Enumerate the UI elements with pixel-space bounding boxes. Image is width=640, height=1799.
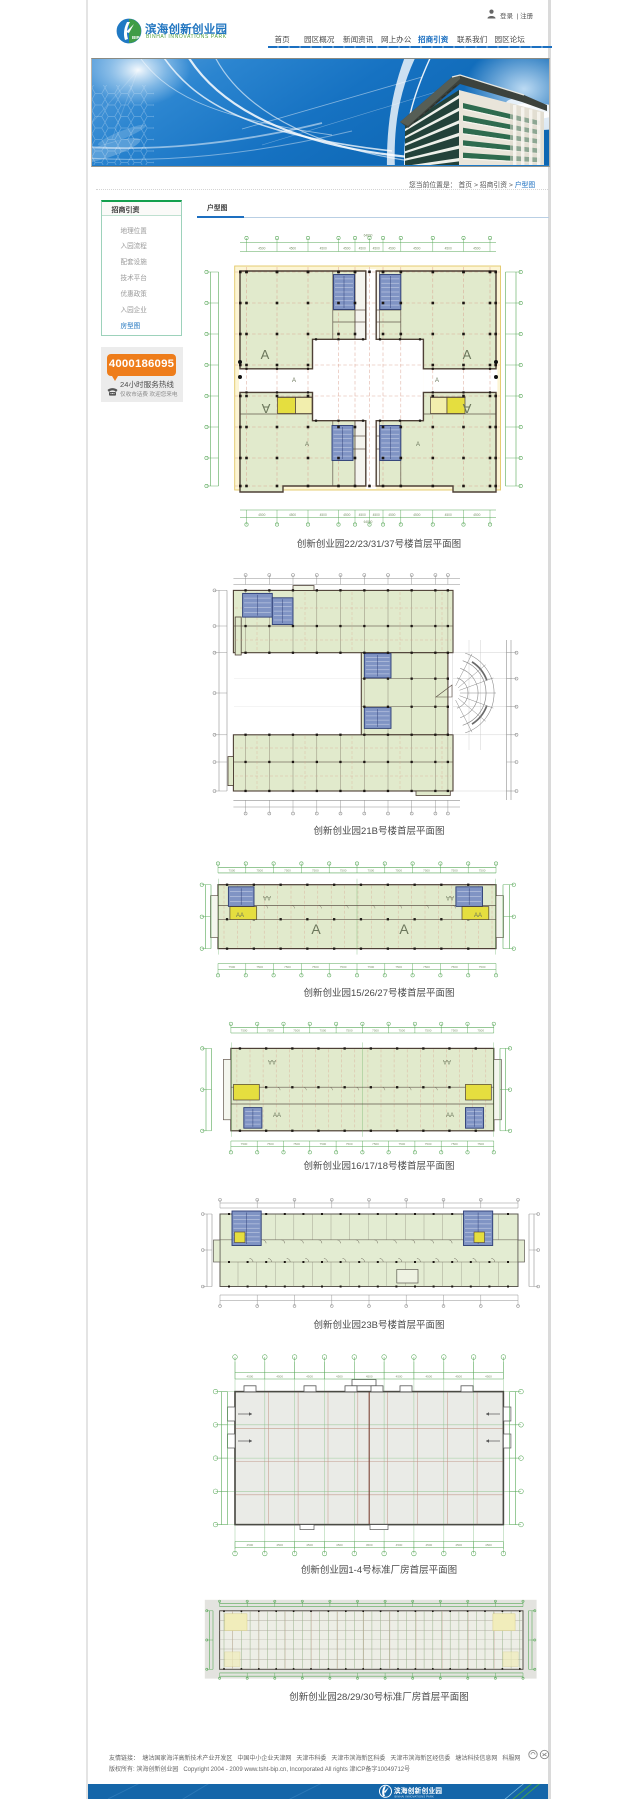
svg-text:7500: 7500	[241, 1142, 248, 1146]
svg-text:7500: 7500	[479, 868, 486, 872]
svg-text:7500: 7500	[368, 965, 375, 969]
svg-text:7500: 7500	[451, 1142, 458, 1146]
svg-text:4500: 4500	[276, 1375, 283, 1379]
svg-text:4500: 4500	[485, 1543, 492, 1547]
svg-text:4500: 4500	[413, 513, 420, 517]
svg-text:A: A	[261, 347, 270, 362]
svg-text:4500: 4500	[366, 1543, 373, 1547]
svg-text:7500: 7500	[398, 1142, 405, 1146]
svg-text:7500: 7500	[451, 1029, 458, 1033]
svg-text:4500: 4500	[473, 247, 480, 251]
svg-text:4500: 4500	[289, 247, 296, 251]
svg-text:7500: 7500	[368, 868, 375, 872]
svg-text:滨海创新创业园: 滨海创新创业园	[394, 1786, 442, 1795]
svg-text:7500: 7500	[372, 1029, 379, 1033]
svg-text:7500: 7500	[293, 1029, 300, 1033]
svg-text:A: A	[292, 378, 296, 384]
svg-text:A: A	[435, 378, 439, 384]
svg-text:7500: 7500	[477, 1029, 484, 1033]
svg-text:4500: 4500	[473, 513, 480, 517]
svg-text:4500: 4500	[388, 247, 395, 251]
svg-text:AA: AA	[446, 894, 454, 900]
svg-text:4500: 4500	[425, 1543, 432, 1547]
svg-text:AA: AA	[236, 913, 244, 919]
svg-text:4500: 4500	[388, 513, 395, 517]
svg-text:4500: 4500	[336, 1375, 343, 1379]
svg-text:7500: 7500	[312, 965, 319, 969]
svg-text:A: A	[261, 401, 270, 416]
svg-text:AA: AA	[268, 1058, 276, 1064]
svg-text:7500: 7500	[395, 965, 402, 969]
svg-text:4500: 4500	[373, 513, 380, 517]
svg-text:7500: 7500	[267, 1029, 274, 1033]
svg-text:A: A	[462, 401, 471, 416]
svg-text:4500: 4500	[445, 513, 452, 517]
svg-text:7500: 7500	[256, 965, 263, 969]
svg-text:7500: 7500	[293, 1142, 300, 1146]
svg-text:7500: 7500	[479, 965, 486, 969]
svg-text:4500: 4500	[306, 1543, 313, 1547]
svg-text:7500: 7500	[320, 1029, 327, 1033]
svg-text:4500: 4500	[343, 513, 350, 517]
svg-text:4500: 4500	[276, 1543, 283, 1547]
svg-text:A: A	[463, 347, 472, 362]
svg-text:64800: 64800	[364, 520, 373, 524]
svg-text:A: A	[416, 442, 420, 448]
svg-text:7500: 7500	[346, 1142, 353, 1146]
svg-text:4500: 4500	[258, 247, 265, 251]
svg-text:7500: 7500	[451, 965, 458, 969]
svg-text:4500: 4500	[366, 1375, 373, 1379]
svg-text:7500: 7500	[256, 868, 263, 872]
svg-text:4500: 4500	[289, 513, 296, 517]
svg-text:AA: AA	[474, 913, 482, 919]
svg-text:AA: AA	[273, 1113, 281, 1119]
svg-text:4500: 4500	[247, 1375, 254, 1379]
svg-text:BINHAI INNOVATIONS PARK: BINHAI INNOVATIONS PARK	[395, 1795, 435, 1799]
svg-text:7500: 7500	[423, 868, 430, 872]
svg-text:7500: 7500	[229, 965, 236, 969]
svg-text:7500: 7500	[346, 1029, 353, 1033]
svg-text:AA: AA	[263, 894, 271, 900]
svg-text:4500: 4500	[373, 247, 380, 251]
svg-text:7500: 7500	[398, 1029, 405, 1033]
svg-text:4500: 4500	[455, 1375, 462, 1379]
svg-text:A: A	[305, 442, 309, 448]
svg-text:4500: 4500	[445, 247, 452, 251]
svg-text:4500: 4500	[320, 513, 327, 517]
svg-text:7500: 7500	[477, 1142, 484, 1146]
svg-text:4500: 4500	[425, 1375, 432, 1379]
svg-text:7500: 7500	[267, 1142, 274, 1146]
svg-text:7500: 7500	[241, 1029, 248, 1033]
svg-text:4500: 4500	[396, 1375, 403, 1379]
svg-text:4500: 4500	[247, 1543, 254, 1547]
svg-text:AA: AA	[443, 1058, 451, 1064]
svg-text:7500: 7500	[340, 868, 347, 872]
svg-text:4500: 4500	[359, 247, 366, 251]
svg-text:7500: 7500	[229, 868, 236, 872]
svg-text:7500: 7500	[372, 1142, 379, 1146]
svg-text:7500: 7500	[320, 1142, 327, 1146]
svg-text:7500: 7500	[312, 868, 319, 872]
svg-text:4500: 4500	[359, 513, 366, 517]
svg-text:7500: 7500	[284, 868, 291, 872]
svg-text:7500: 7500	[284, 965, 291, 969]
svg-text:4500: 4500	[306, 1375, 313, 1379]
svg-text:4500: 4500	[320, 247, 327, 251]
svg-text:AA: AA	[446, 1113, 454, 1119]
svg-text:7500: 7500	[395, 868, 402, 872]
svg-text:A: A	[399, 921, 409, 937]
svg-text:4500: 4500	[258, 513, 265, 517]
svg-text:4500: 4500	[455, 1543, 462, 1547]
svg-text:4500: 4500	[485, 1375, 492, 1379]
svg-text:BIP: BIP	[132, 35, 140, 40]
svg-text:7500: 7500	[425, 1142, 432, 1146]
svg-text:4500: 4500	[396, 1543, 403, 1547]
svg-text:7500: 7500	[451, 868, 458, 872]
svg-text:7500: 7500	[425, 1029, 432, 1033]
svg-text:4500: 4500	[343, 247, 350, 251]
svg-text:A: A	[311, 921, 321, 937]
svg-text:7500: 7500	[423, 965, 430, 969]
svg-text:4500: 4500	[336, 1543, 343, 1547]
svg-text:7500: 7500	[340, 965, 347, 969]
svg-text:4500: 4500	[413, 247, 420, 251]
svg-text:64800: 64800	[364, 234, 373, 238]
